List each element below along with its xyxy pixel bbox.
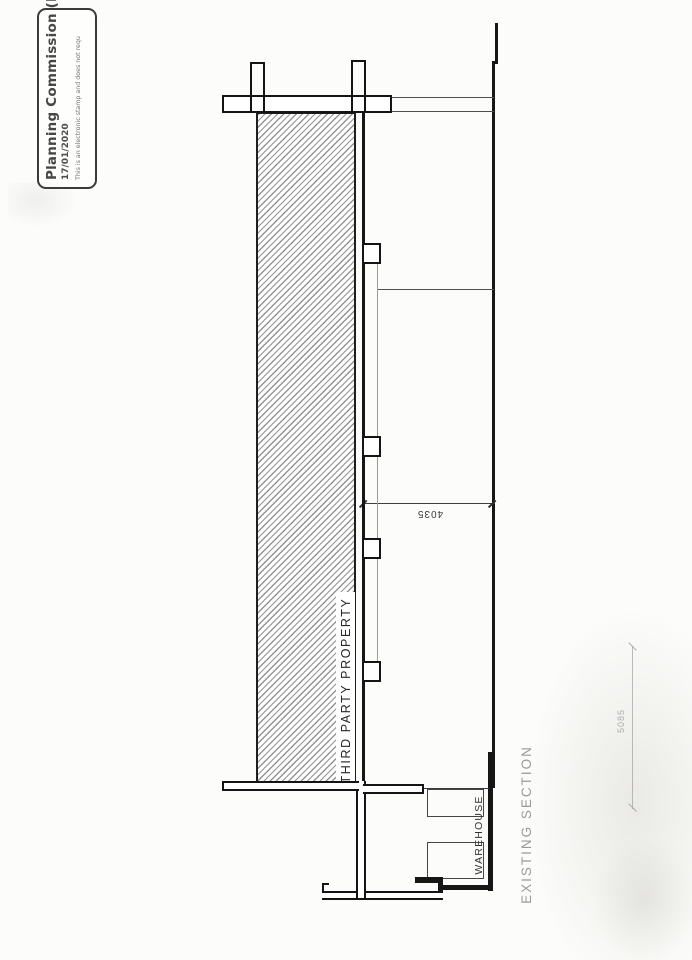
- warehouse-top-wall: [363, 784, 424, 794]
- ground-line-upper-segment: [495, 23, 498, 64]
- stamp-title: Planning Commission (Re: [44, 17, 60, 180]
- third-party-property-text: THIRD PARTY PROPERTY: [336, 592, 355, 789]
- level-line-top-1: [391, 97, 494, 98]
- third-party-property-label: THIRD PARTY PROPERTY: [336, 592, 355, 789]
- warehouse-label: WAREHOUSE: [470, 789, 488, 881]
- bottom-ground-line-right: [441, 885, 493, 890]
- scan-smudge-corner: [596, 840, 692, 960]
- bottom-foundation-line: [322, 891, 443, 900]
- pilaster-3: [364, 538, 381, 559]
- dimension-4035-value: 4035: [408, 504, 452, 519]
- parapet-post-left: [250, 62, 265, 113]
- lower-wall-left: [222, 781, 359, 791]
- pilaster-4: [364, 661, 381, 682]
- planning-stamp: Planning Commission (Re 17/01/2020 This …: [37, 8, 97, 189]
- pilaster-1: [364, 243, 381, 264]
- drawing-title: EXISTING SECTION: [513, 751, 540, 898]
- warehouse-text: WAREHOUSE: [470, 789, 488, 881]
- stamp-date: 17/01/2020: [61, 17, 71, 180]
- roof-beam: [222, 95, 392, 113]
- level-line-top-2: [391, 111, 494, 112]
- dimension-5085-value-box: 5085: [612, 702, 629, 740]
- dimension-5085-line: [632, 646, 633, 809]
- ground-line: [492, 61, 495, 788]
- planning-stamp-content: Planning Commission (Re 17/01/2020 This …: [39, 10, 95, 187]
- scanned-section-drawing-page: Planning Commission (Re 17/01/2020 This …: [0, 0, 692, 960]
- center-wall: [356, 781, 366, 898]
- pilaster-2: [364, 436, 381, 457]
- warehouse-right-wall: [488, 752, 493, 891]
- parapet-post-right: [351, 60, 366, 113]
- stamp-disclaimer: This is an electronic stamp and does not…: [75, 17, 82, 180]
- level-line-mid: [378, 289, 494, 290]
- scan-smudge-bottom-right: [528, 610, 692, 960]
- wall-inner-finish-line: [377, 262, 378, 663]
- drawing-title-text: EXISTING SECTION: [513, 751, 540, 898]
- dimension-5085-value: 5085: [612, 702, 629, 740]
